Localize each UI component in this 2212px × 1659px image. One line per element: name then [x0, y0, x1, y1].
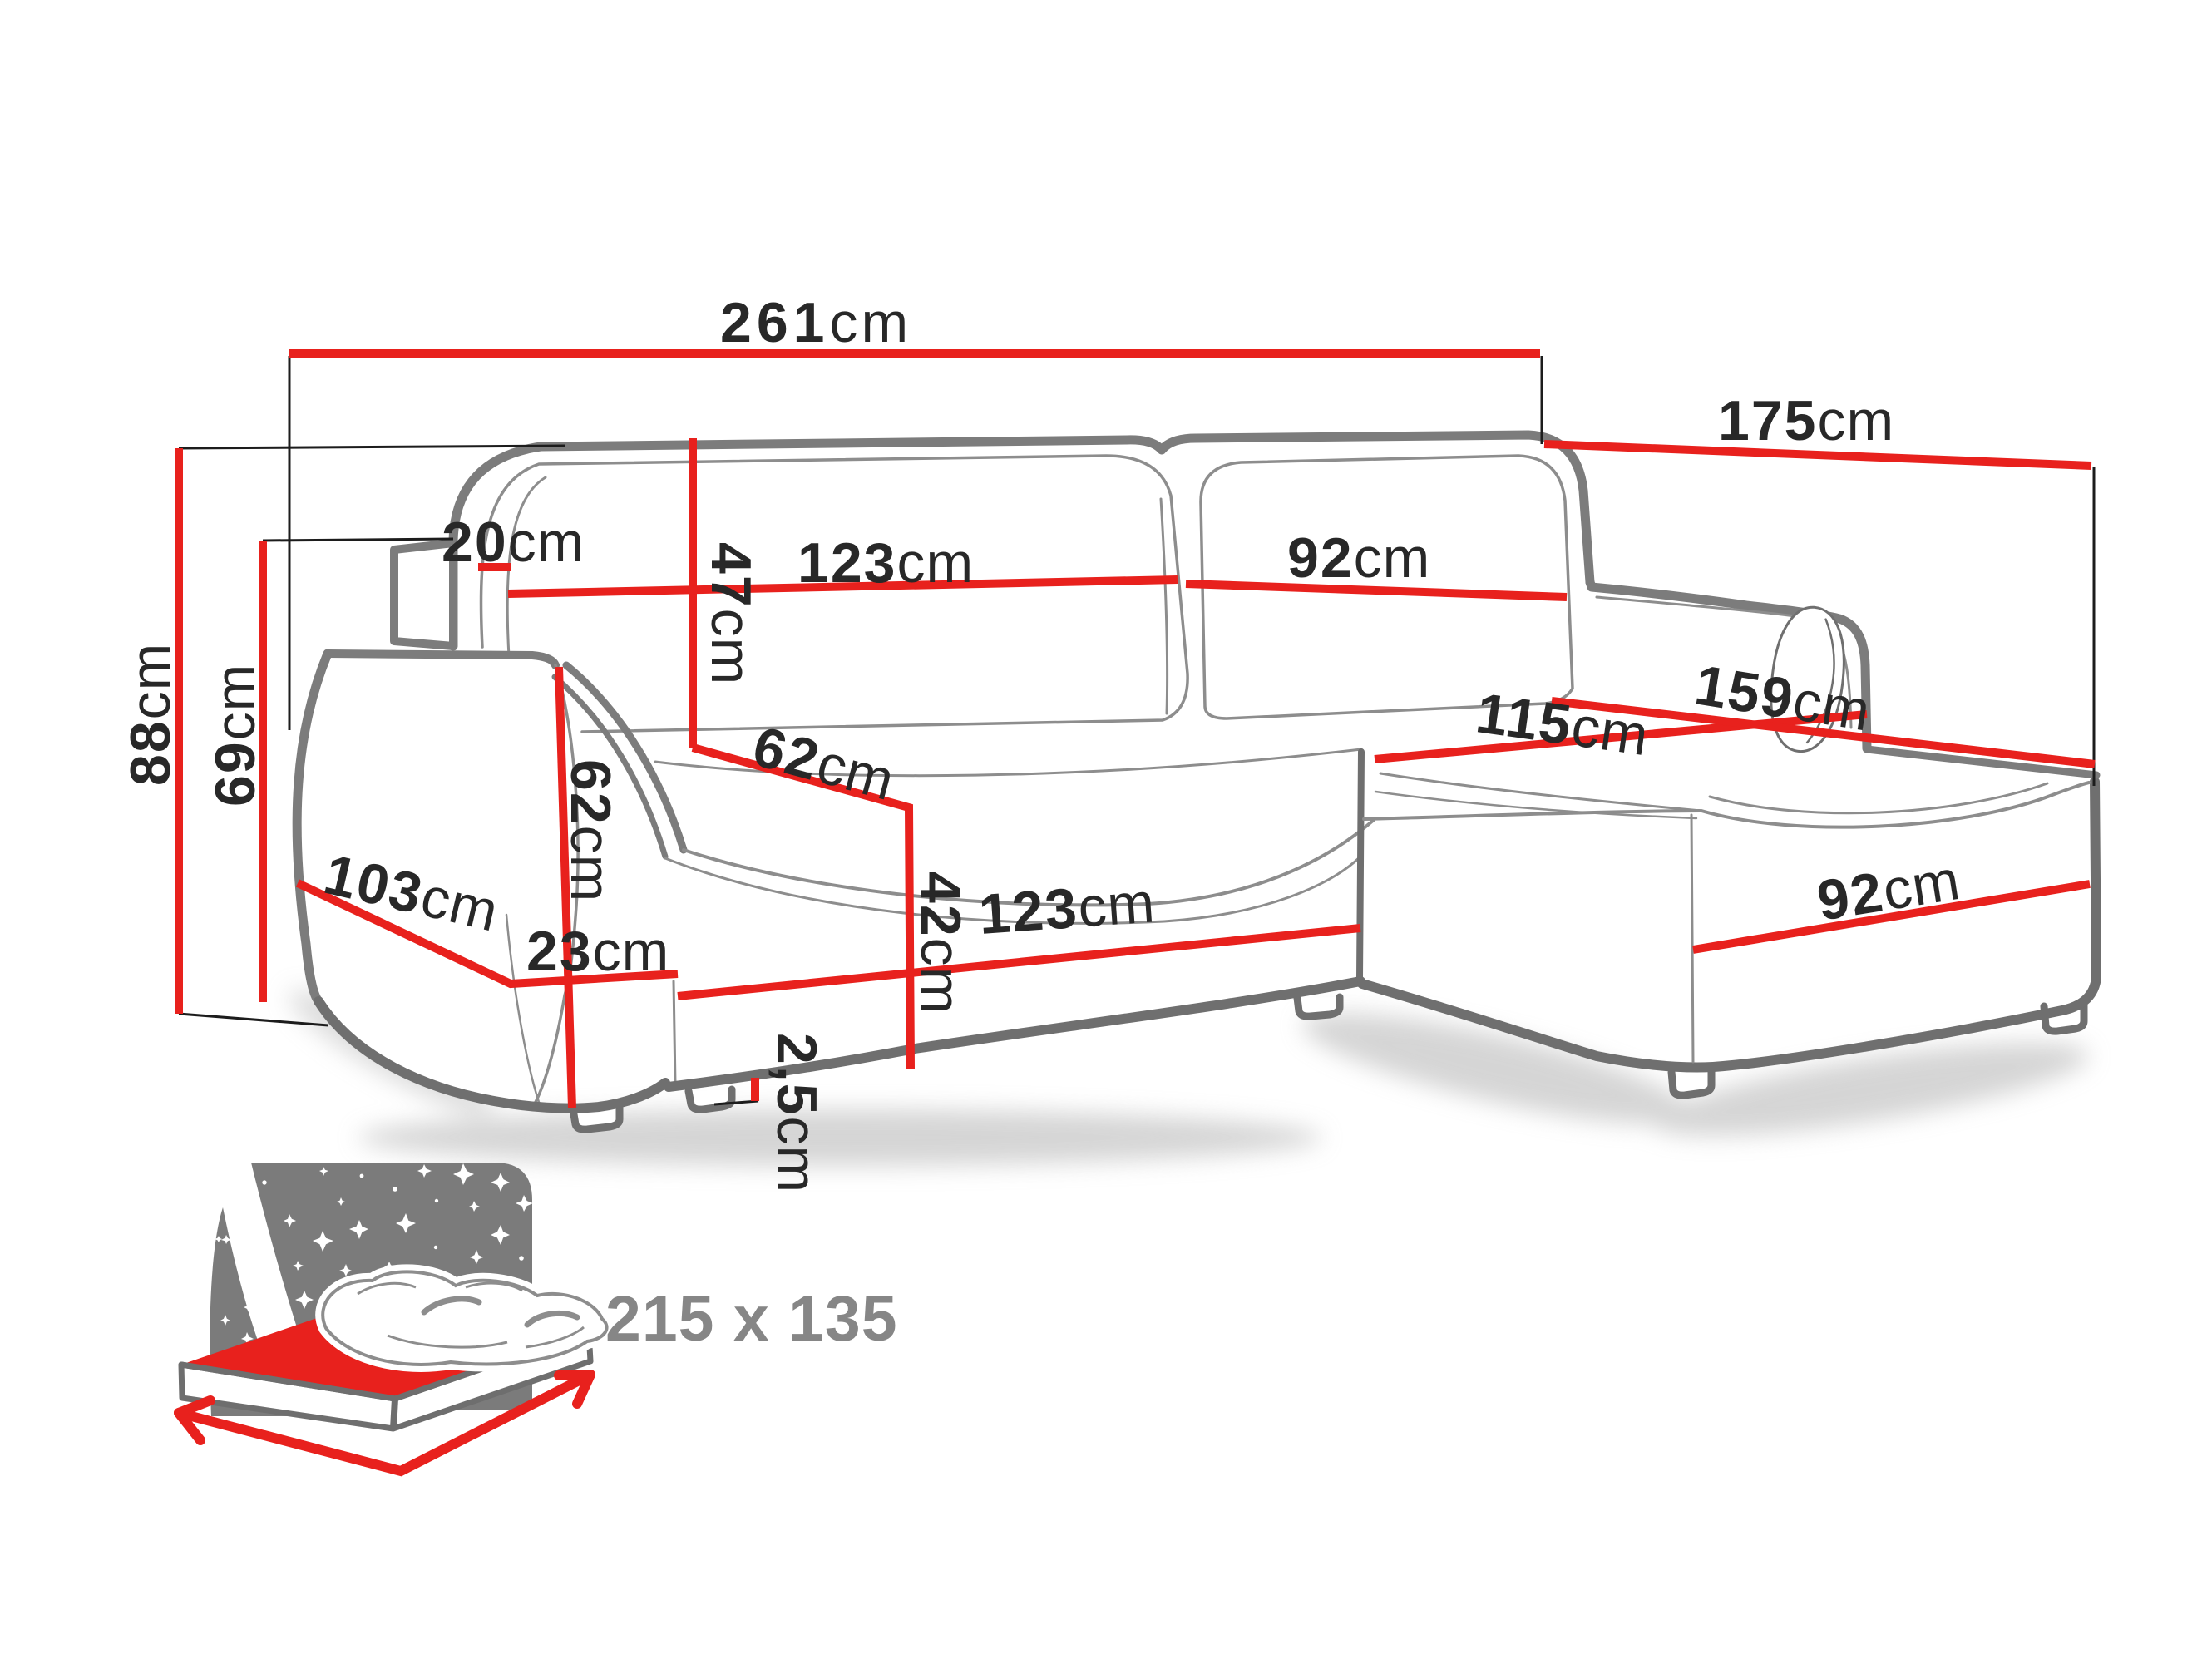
svg-text:42cm: 42cm: [909, 871, 972, 1015]
svg-text:123cm: 123cm: [977, 871, 1158, 946]
svg-text:62cm: 62cm: [559, 759, 622, 902]
svg-text:2,5cm: 2,5cm: [765, 1033, 828, 1193]
svg-text:123cm: 123cm: [797, 531, 974, 595]
svg-text:69cm: 69cm: [204, 664, 267, 807]
svg-text:261cm: 261cm: [720, 291, 911, 354]
svg-text:92cm: 92cm: [1287, 526, 1430, 590]
svg-text:88cm: 88cm: [119, 643, 182, 786]
svg-text:23cm: 23cm: [526, 920, 669, 983]
svg-text:47cm: 47cm: [699, 542, 763, 685]
svg-text:215 x 135: 215 x 135: [605, 1283, 898, 1355]
svg-text:20cm: 20cm: [442, 511, 585, 574]
svg-text:175cm: 175cm: [1718, 389, 1894, 452]
